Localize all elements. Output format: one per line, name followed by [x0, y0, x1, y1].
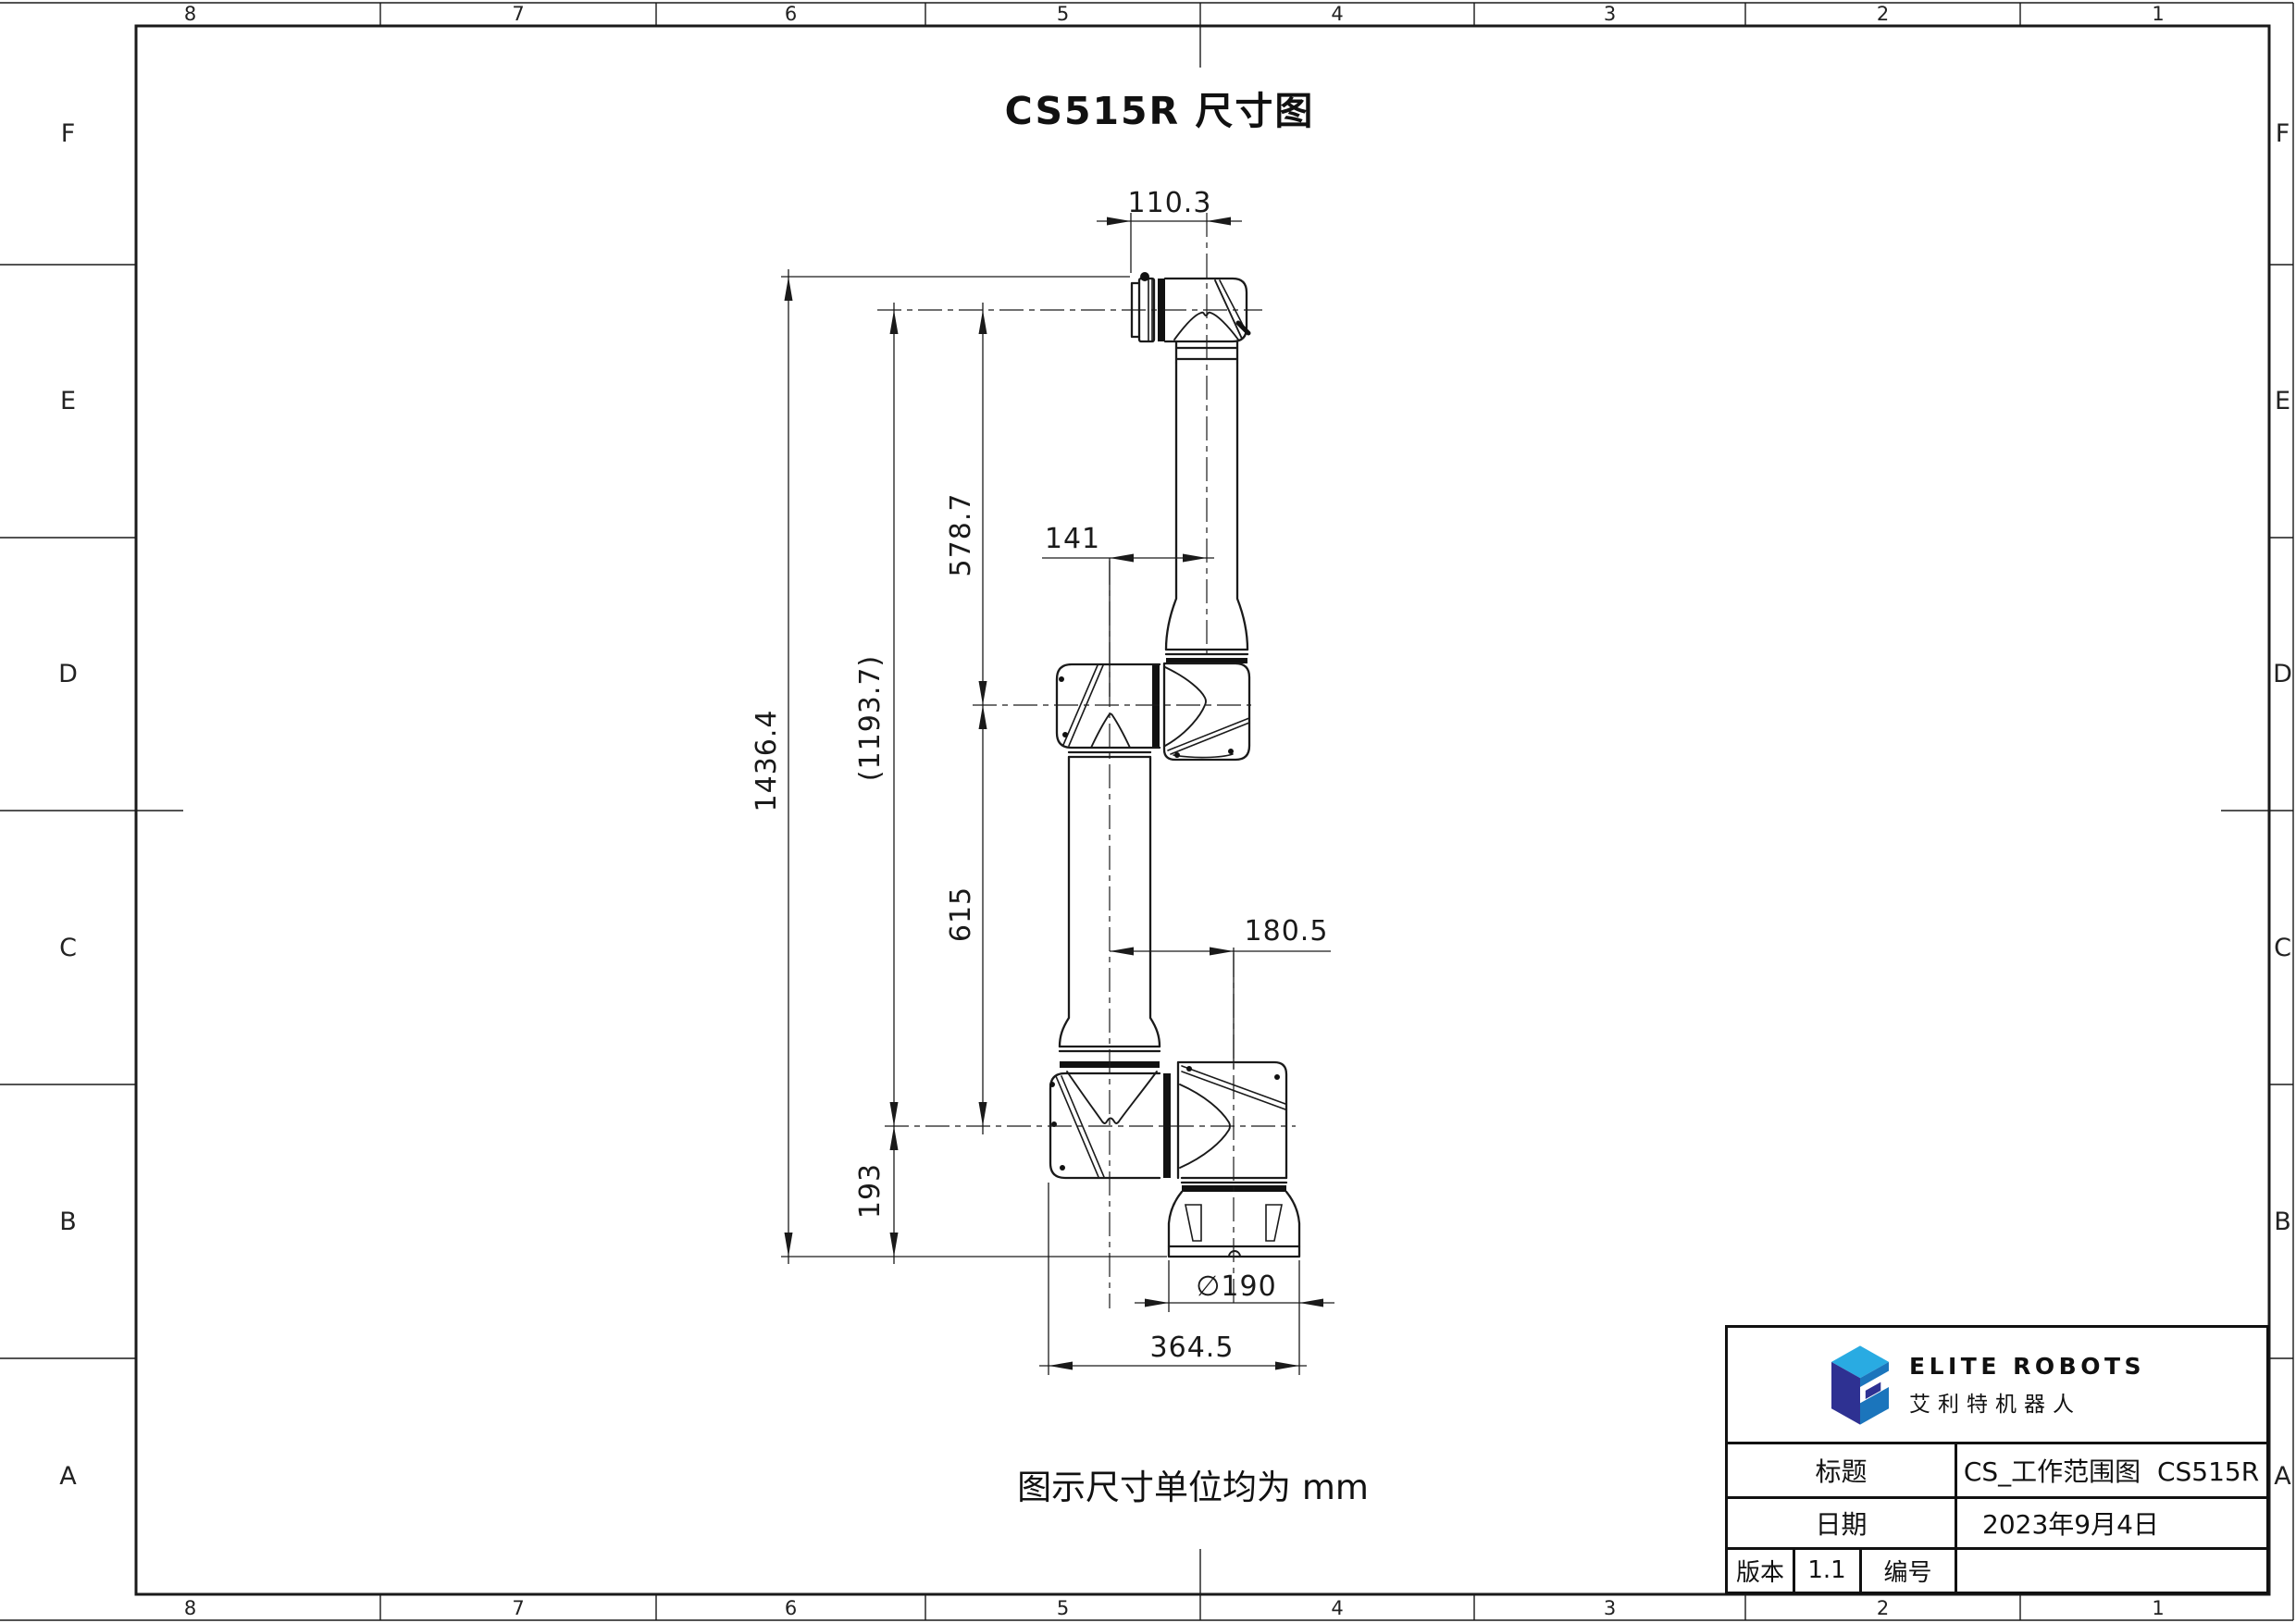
zone-row-right-a: A: [2269, 1358, 2296, 1594]
brand-name-cn: 艾利特机器人: [1909, 1386, 2145, 1418]
zone-row-left-c: C: [0, 811, 136, 1084]
zone-col-top-7: 7: [380, 0, 656, 27]
zone-row-left-b: B: [0, 1084, 136, 1358]
dim-elbow-to-shoulder: 615: [945, 886, 977, 942]
zone-row-left-f: F: [0, 3, 136, 265]
dim-flange-width: 110.3: [1128, 187, 1212, 219]
zone-col-bottom-8: 8: [0, 1594, 380, 1622]
version-value-cell: 1.1: [1794, 1549, 1859, 1592]
dim-overall-height: 1436.4: [751, 710, 783, 812]
unit-note: 图示尺寸单位均为 mm: [999, 1459, 1387, 1509]
zone-row-left-e: E: [0, 265, 136, 538]
dimension-annotations: 110.3 141 180.5 ∅190 364.5 578.7 615 (11…: [751, 187, 1334, 1375]
elite-robots-logo-icon: [1831, 1345, 1889, 1425]
brand-row: ELITE ROBOTS 艾利特机器人: [1728, 1328, 2272, 1442]
zone-row-right-f: F: [2269, 3, 2296, 265]
date-value-cell: 2023年9月4日: [1956, 1498, 2266, 1547]
elbow-joint: [1057, 663, 1249, 760]
zone-col-top-2: 2: [1745, 0, 2020, 27]
number-label-cell: 编号: [1861, 1549, 1955, 1592]
zone-col-bottom-2: 2: [1745, 1594, 2020, 1622]
zone-row-right-e: E: [2269, 265, 2296, 538]
zone-col-bottom-3: 3: [1474, 1594, 1745, 1622]
zone-col-bottom-6: 6: [656, 1594, 925, 1622]
zone-row-left-a: A: [0, 1358, 136, 1594]
dim-wrist-to-elbow: 578.7: [945, 493, 977, 577]
zone-row-right-c: C: [2269, 811, 2296, 1084]
number-value-cell: [1956, 1549, 2266, 1592]
zone-row-right-b: B: [2269, 1084, 2296, 1358]
zone-col-top-4: 4: [1200, 0, 1474, 27]
zone-col-bottom-1: 1: [2020, 1594, 2296, 1622]
wrist-assembly: [1132, 272, 1248, 363]
zone-col-bottom-7: 7: [380, 1594, 656, 1622]
page-title: CS515R 尺寸图: [979, 80, 1340, 135]
dim-base-diameter: ∅190: [1196, 1270, 1276, 1303]
brand-name-en: ELITE ROBOTS: [1909, 1353, 2145, 1380]
zone-col-bottom-4: 4: [1200, 1594, 1474, 1622]
dim-wrist-to-shoulder: (1193.7): [854, 655, 887, 781]
zone-row-right-d: D: [2269, 538, 2296, 811]
title-label-cell: 标题: [1728, 1443, 1955, 1496]
zone-col-top-3: 3: [1474, 0, 1745, 27]
zone-col-top-5: 5: [925, 0, 1200, 27]
drawing-sheet: 110.3 141 180.5 ∅190 364.5 578.7 615 (11…: [0, 0, 2296, 1623]
zone-row-left-d: D: [0, 538, 136, 811]
dim-base-axis-offset: 180.5: [1245, 915, 1329, 948]
dim-footprint-width: 364.5: [1150, 1332, 1235, 1364]
date-label-cell: 日期: [1728, 1498, 1955, 1547]
zone-col-bottom-5: 5: [925, 1594, 1200, 1622]
zone-col-top-1: 1: [2020, 0, 2296, 27]
title-block: ELITE ROBOTS 艾利特机器人 标题 CS_工作范围图 CS515R 日…: [1725, 1325, 2269, 1594]
zone-col-top-6: 6: [656, 0, 925, 27]
version-label-cell: 版本: [1728, 1549, 1793, 1592]
dim-shoulder-to-base: 193: [854, 1163, 887, 1219]
dim-elbow-offset: 141: [1045, 523, 1100, 555]
title-value-cell: CS_工作范围图 CS515R: [1956, 1443, 2266, 1496]
robot-arm-drawing: [877, 213, 1299, 1308]
